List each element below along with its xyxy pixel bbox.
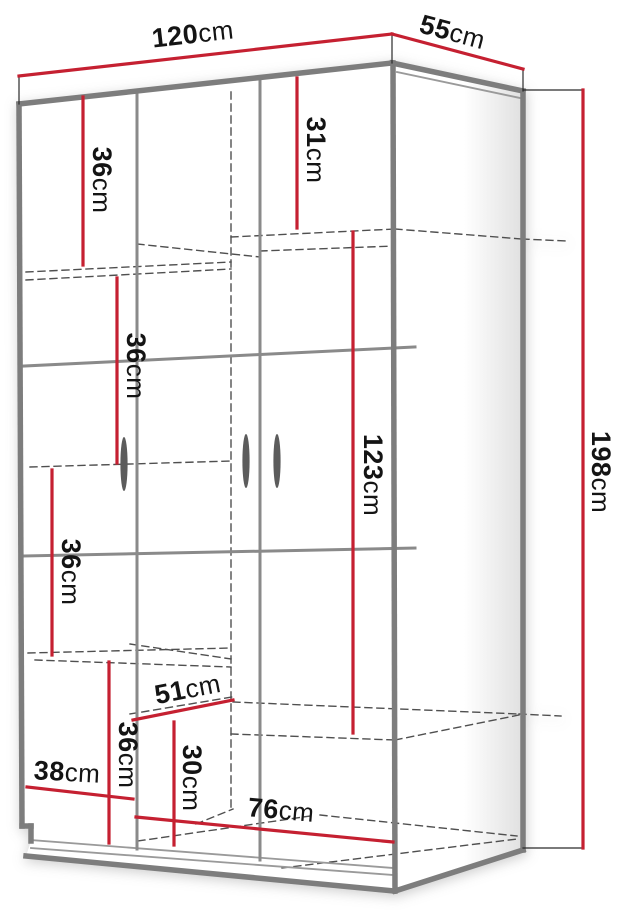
wardrobe-dimension-diagram: 120cm55cm198cm31cm36cm36cm36cm36cm123cm5…	[0, 0, 620, 910]
dimension-label-shelf-top-left: 36cm	[87, 147, 117, 214]
cabinet-edge	[393, 63, 395, 891]
dimension-height-right: 198cm	[583, 90, 616, 848]
dimension-label-shelf-left-4: 36cm	[113, 722, 143, 789]
dimension-label-bottom-height: 30cm	[177, 745, 207, 812]
hidden-edge-dashed	[522, 239, 566, 241]
door-handle	[242, 434, 249, 488]
door-handle	[273, 434, 280, 488]
diagram-svg: 120cm55cm198cm31cm36cm36cm36cm36cm123cm5…	[0, 0, 620, 910]
door-handle	[120, 437, 127, 491]
dimension-label-shelf-top-right: 31cm	[301, 117, 331, 184]
dimension-label-bottom-right-width: 76cm	[247, 792, 316, 828]
dimension-depth-top: 55cm	[392, 9, 523, 69]
cabinet-edge	[19, 104, 22, 826]
dimension-label-shelf-left-3: 36cm	[56, 539, 86, 606]
dimension-label-bottom-left-width: 38cm	[33, 755, 101, 789]
dimension-label-depth-top: 55cm	[416, 9, 488, 55]
dimension-label-width-top: 120cm	[150, 14, 235, 53]
dimension-label-shelf-left-2: 36cm	[121, 333, 151, 400]
side-panel	[392, 63, 523, 891]
dimension-label-hanging-space: 123cm	[358, 434, 388, 516]
dimension-label-height-right: 198cm	[586, 431, 616, 513]
